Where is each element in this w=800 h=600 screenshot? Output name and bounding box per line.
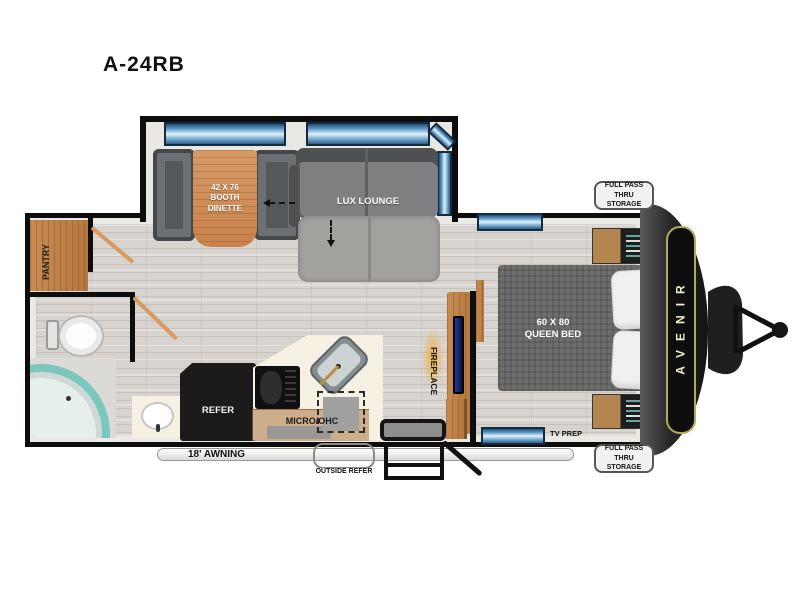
hitch-ball-icon bbox=[772, 322, 788, 338]
hitch bbox=[698, 278, 794, 382]
stove bbox=[255, 366, 300, 409]
toilet bbox=[58, 315, 104, 357]
tv-prep-label: TV PREP bbox=[550, 429, 582, 438]
awning-label: 18' AWNING bbox=[158, 449, 245, 460]
storage-label-bottom: FULL PASS THRU STORAGE bbox=[594, 444, 654, 473]
outside-refer-label: OUTSIDE REFER bbox=[303, 468, 385, 475]
slideout-side-window bbox=[437, 151, 452, 216]
convert-arrow-left-icon bbox=[263, 199, 295, 208]
pantry-wall bbox=[88, 215, 93, 272]
brand-plate: AVENIR bbox=[666, 226, 696, 434]
hitch-frame-upper bbox=[738, 308, 776, 328]
dinette-table: 42 X 76 BOOTH DINETTE bbox=[193, 150, 257, 247]
brand-name: AVENIR bbox=[674, 276, 688, 383]
shower-drain-icon bbox=[66, 396, 71, 401]
hitch-frame-lower bbox=[738, 332, 776, 352]
burner-icon bbox=[260, 371, 282, 404]
micro-label: MICRO/OHC bbox=[272, 416, 352, 426]
refrigerator: REFER bbox=[180, 363, 256, 441]
fireplace-label: FIREPLACE bbox=[427, 328, 441, 414]
page-title: A-24RB bbox=[103, 53, 185, 77]
bed-label: 60 X 80 QUEEN BED bbox=[498, 317, 608, 341]
refer-label: REFER bbox=[202, 405, 234, 416]
dinette-label: 42 X 76 BOOTH DINETTE bbox=[208, 183, 242, 214]
chaise-cushion-divider bbox=[368, 216, 371, 282]
bathroom-top-wall bbox=[28, 292, 135, 297]
outside-refer-compartment bbox=[313, 443, 375, 469]
bedroom-window-bottom bbox=[481, 427, 545, 445]
bedroom-entry-trim bbox=[476, 280, 484, 342]
lounge-chaise bbox=[298, 216, 440, 282]
bathroom-right-wall bbox=[130, 292, 135, 362]
sofa-cushion-divider bbox=[365, 148, 368, 218]
lounge-label: LUX LOUNGE bbox=[326, 196, 410, 207]
microwave-ohc bbox=[317, 391, 365, 433]
slideout-window-left bbox=[164, 122, 286, 146]
bedroom-window-top bbox=[477, 213, 543, 231]
entry-steps bbox=[384, 444, 444, 482]
wardrobe bbox=[446, 399, 467, 439]
shower bbox=[30, 358, 116, 438]
tv-screen bbox=[453, 316, 464, 394]
pantry-label: PANTRY bbox=[38, 234, 54, 290]
convert-arrow-down-icon bbox=[326, 220, 336, 248]
lounge-sofa-back bbox=[296, 148, 438, 218]
entry-mat bbox=[380, 419, 446, 441]
hitch-crossbar bbox=[733, 305, 738, 353]
lounge-sofa-arm bbox=[289, 165, 299, 227]
slideout-window-right bbox=[306, 122, 430, 146]
floorplan: A-24RB PANTRY REFER MICRO/OHC FIREPLACE bbox=[0, 0, 800, 600]
bathroom-faucet-icon bbox=[156, 424, 160, 432]
burner-grate-icon bbox=[285, 370, 296, 405]
shower-pan bbox=[30, 364, 110, 438]
dinette-bench-left bbox=[153, 149, 195, 241]
storage-label-top: FULL PASS THRU STORAGE bbox=[594, 181, 654, 210]
